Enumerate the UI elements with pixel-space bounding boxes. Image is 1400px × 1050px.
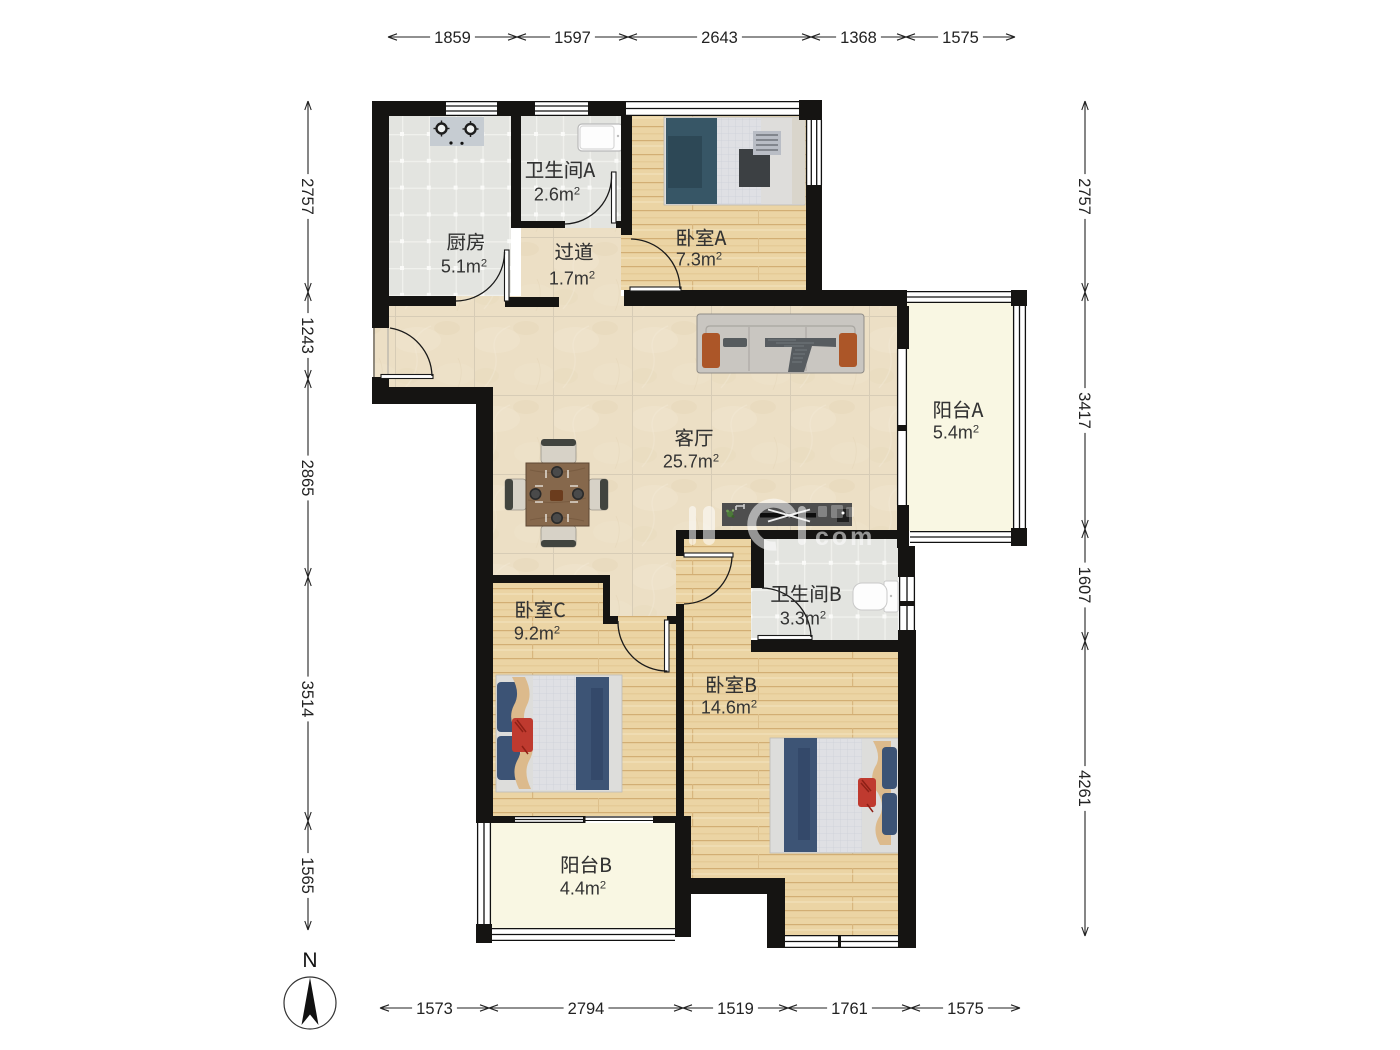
- svg-text:com: com: [815, 523, 875, 551]
- svg-text:N: N: [302, 949, 317, 972]
- svg-text:1573: 1573: [416, 1000, 453, 1018]
- svg-text:2643: 2643: [701, 29, 738, 47]
- svg-text:2865: 2865: [298, 460, 316, 497]
- svg-text:1243: 1243: [298, 317, 316, 354]
- svg-text:4.4m2: 4.4m2: [560, 878, 606, 898]
- svg-text:1519: 1519: [717, 1000, 754, 1018]
- svg-text:2794: 2794: [568, 1000, 605, 1018]
- svg-text:1607: 1607: [1075, 567, 1093, 604]
- svg-text:3514: 3514: [298, 681, 316, 718]
- svg-text:1859: 1859: [434, 29, 471, 47]
- svg-text:1565: 1565: [298, 857, 316, 894]
- svg-text:2757: 2757: [1075, 178, 1093, 215]
- svg-text:2.6m2: 2.6m2: [534, 184, 580, 204]
- svg-text:1761: 1761: [831, 1000, 868, 1018]
- svg-text:9.2m2: 9.2m2: [514, 623, 560, 643]
- svg-text:2757: 2757: [298, 178, 316, 215]
- svg-text:5.1m2: 5.1m2: [441, 256, 487, 276]
- svg-text:1575: 1575: [947, 1000, 984, 1018]
- svg-text:5.4m2: 5.4m2: [933, 422, 979, 442]
- svg-text:14.6m2: 14.6m2: [701, 697, 757, 717]
- svg-text:3417: 3417: [1075, 392, 1093, 429]
- svg-text:7.3m2: 7.3m2: [676, 249, 722, 269]
- svg-text:25.7m2: 25.7m2: [663, 451, 719, 471]
- svg-text:1368: 1368: [840, 29, 877, 47]
- svg-text:4261: 4261: [1075, 770, 1093, 807]
- svg-text:1575: 1575: [942, 29, 979, 47]
- svg-text:3.3m2: 3.3m2: [780, 608, 826, 628]
- svg-text:1597: 1597: [554, 29, 591, 47]
- svg-text:1.7m2: 1.7m2: [549, 268, 595, 288]
